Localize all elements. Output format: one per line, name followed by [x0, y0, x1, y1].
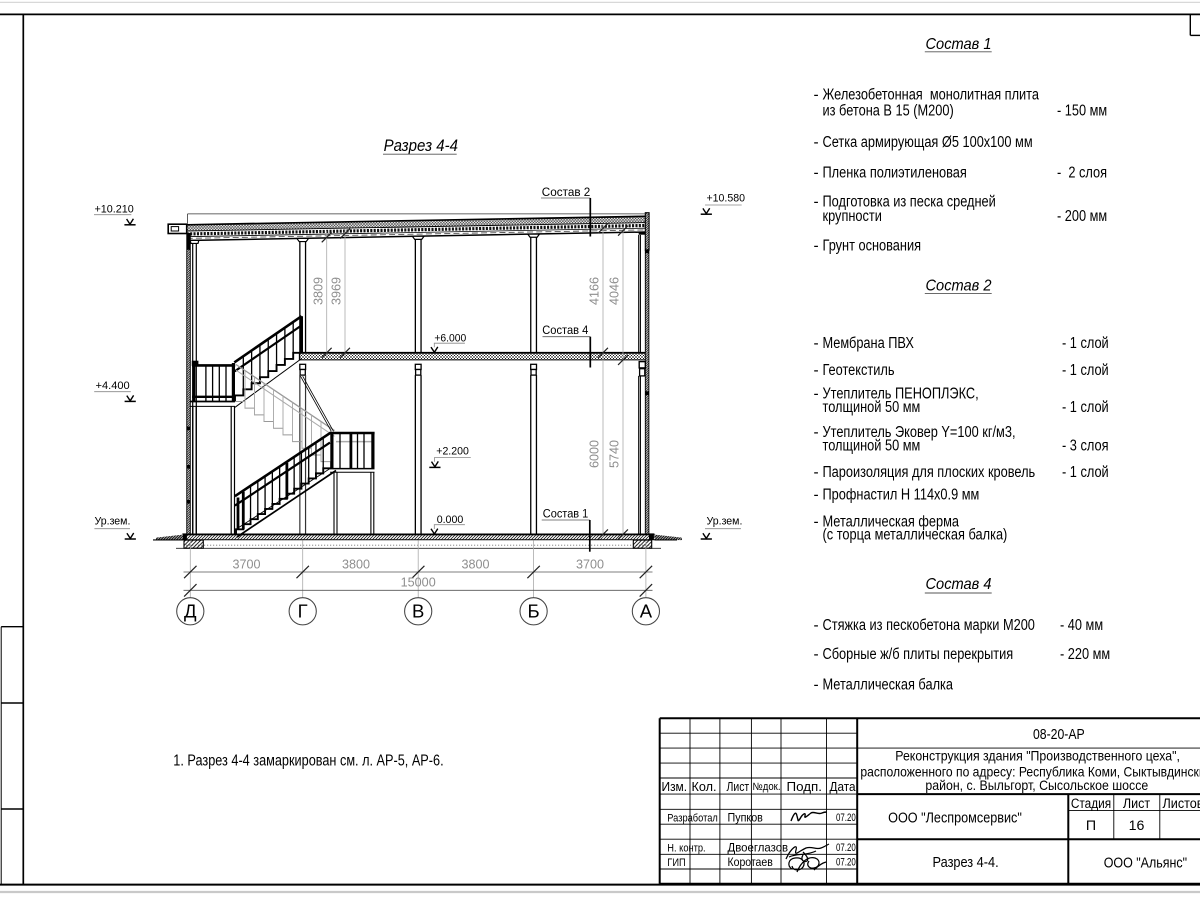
svg-text:-: -: [814, 238, 819, 255]
svg-text:-: -: [814, 514, 819, 531]
svg-text:Состав 1: Состав 1: [543, 507, 589, 521]
svg-text:-: -: [814, 194, 819, 211]
svg-text:Грунт основания: Грунт основания: [823, 238, 922, 255]
svg-text:- 150 мм: - 150 мм: [1057, 103, 1107, 120]
svg-text:+6.000: +6.000: [434, 332, 466, 344]
svg-text:Разрез 4-4.: Разрез 4-4.: [933, 855, 999, 871]
svg-text:Состав 4: Состав 4: [542, 323, 588, 337]
svg-text:Профнастил Н 114х0.9 мм: Профнастил Н 114х0.9 мм: [823, 487, 980, 504]
svg-text:ООО "Леспромсервис": ООО "Леспромсервис": [888, 811, 1022, 827]
svg-text:Сборные ж/б плиты перекрытия: Сборные ж/б плиты перекрытия: [823, 646, 1014, 663]
svg-text:+4.400: +4.400: [96, 380, 130, 392]
svg-text:район, с. Выльгорт, Сысольское: район, с. Выльгорт, Сысольское шоссе: [925, 778, 1148, 793]
svg-text:Стадия: Стадия: [1071, 796, 1111, 811]
svg-text:-: -: [814, 676, 819, 693]
svg-text:Пароизоляция для плоских крове: Пароизоляция для плоских кровель: [823, 464, 1036, 481]
svg-text:№док.: №док.: [753, 781, 781, 793]
svg-text:Дата: Дата: [830, 779, 857, 794]
svg-text:В: В: [412, 601, 424, 622]
svg-text:6000: 6000: [588, 440, 602, 468]
svg-text:-: -: [814, 335, 819, 352]
svg-text:Кол.: Кол.: [692, 779, 717, 794]
svg-text:07.20: 07.20: [836, 812, 856, 824]
svg-text:08-20-АР: 08-20-АР: [1033, 726, 1085, 743]
svg-text:Состав 2: Состав 2: [926, 277, 992, 294]
svg-text:Коротаев: Коротаев: [728, 855, 773, 869]
svg-text:Разработал: Разработал: [667, 812, 718, 824]
svg-text:- 1 слой: - 1 слой: [1062, 335, 1109, 352]
svg-text:Геотекстиль: Геотекстиль: [823, 362, 895, 379]
svg-text:3969: 3969: [330, 277, 344, 305]
svg-text:-: -: [814, 464, 819, 481]
svg-text:П: П: [1086, 818, 1096, 834]
svg-text:Двоеглазов: Двоеглазов: [728, 840, 789, 854]
svg-text:Металлическая балка: Металлическая балка: [823, 676, 954, 693]
svg-text:-: -: [814, 134, 819, 151]
svg-text:Д: Д: [184, 601, 197, 622]
svg-text:ООО "Альянс": ООО "Альянс": [1104, 856, 1187, 872]
svg-text:-: -: [814, 87, 819, 104]
svg-text:0.000: 0.000: [437, 514, 464, 526]
svg-text:- 3 слоя: - 3 слоя: [1062, 437, 1109, 454]
svg-text:Стяжка из пескобетона марки М2: Стяжка из пескобетона марки М200: [823, 617, 1035, 634]
svg-text:толщиной 50 мм: толщиной 50 мм: [823, 399, 921, 416]
svg-text:07.20: 07.20: [836, 842, 856, 854]
svg-text:крупности: крупности: [823, 208, 882, 225]
svg-text:(с торца металлическая балка): (с торца металлическая балка): [823, 527, 1008, 544]
svg-text:Железобетонная монолитная пли: Железобетонная монолитная плита: [823, 87, 1040, 104]
svg-text:Лист: Лист: [727, 779, 750, 794]
svg-text:Пленка полиэтиленовая: Пленка полиэтиленовая: [823, 165, 967, 182]
svg-text:-: -: [814, 362, 819, 379]
svg-text:+10.210: +10.210: [95, 204, 134, 216]
svg-text:- 1 слой: - 1 слой: [1062, 399, 1109, 416]
svg-text:- 1 слой: - 1 слой: [1062, 362, 1109, 379]
svg-text:Состав 1: Состав 1: [926, 36, 992, 53]
svg-text:из бетона В 15 (М200): из бетона В 15 (М200): [823, 103, 954, 120]
svg-text:ГИП: ГИП: [667, 857, 685, 869]
svg-text:4046: 4046: [608, 277, 622, 305]
svg-text:Листов: Листов: [1163, 796, 1200, 811]
svg-text:Пупков: Пупков: [728, 810, 763, 824]
svg-text:- 220 мм: - 220 мм: [1060, 646, 1110, 663]
svg-text:толщиной 50 мм: толщиной 50 мм: [823, 437, 921, 454]
svg-text:5740: 5740: [608, 440, 622, 468]
svg-text:1. Разрез 4-4 замаркирован см.: 1. Разрез 4-4 замаркирован см. л. АР-5, …: [173, 752, 443, 769]
svg-text:Состав 2: Состав 2: [542, 185, 591, 199]
svg-text:Б: Б: [528, 601, 540, 622]
svg-text:3800: 3800: [342, 558, 370, 572]
svg-text:-: -: [814, 487, 819, 504]
svg-text:3800: 3800: [461, 558, 489, 572]
svg-text:+2.200: +2.200: [436, 446, 469, 458]
svg-text:3700: 3700: [232, 558, 260, 572]
svg-text:Изм.: Изм.: [662, 779, 688, 794]
svg-text:4166: 4166: [588, 277, 602, 305]
svg-text:Подп.: Подп.: [787, 779, 823, 794]
svg-text:15000: 15000: [401, 576, 436, 590]
svg-text:- 40 мм: - 40 мм: [1060, 617, 1103, 634]
svg-text:Ур.зем.: Ур.зем.: [95, 516, 131, 528]
svg-text:А: А: [640, 601, 653, 622]
svg-text:-: -: [814, 424, 819, 441]
svg-text:+10.580: +10.580: [707, 193, 746, 205]
svg-text:07.20: 07.20: [836, 857, 856, 869]
svg-text:-: -: [814, 617, 819, 634]
svg-text:-: -: [814, 386, 819, 403]
svg-text:- 1 слой: - 1 слой: [1062, 464, 1109, 481]
svg-text:Сетка армирующая Ø5 100х100 мм: Сетка армирующая Ø5 100х100 мм: [823, 134, 1033, 151]
svg-text:- 2 слоя: - 2 слоя: [1057, 165, 1107, 182]
svg-text:3700: 3700: [576, 558, 604, 572]
svg-text:16: 16: [1129, 818, 1145, 834]
svg-text:Реконструкция здания "Производ: Реконструкция здания "Производственного …: [895, 749, 1180, 764]
svg-text:-: -: [814, 165, 819, 182]
svg-text:3809: 3809: [311, 277, 325, 305]
svg-text:Разрез 4-4: Разрез 4-4: [384, 137, 458, 155]
svg-text:- 200 мм: - 200 мм: [1057, 208, 1107, 225]
svg-text:Состав 4: Состав 4: [926, 576, 992, 593]
svg-text:-: -: [814, 646, 819, 663]
svg-text:Лист: Лист: [1123, 796, 1150, 811]
svg-text:Мембрана ПВХ: Мембрана ПВХ: [823, 335, 914, 352]
svg-text:Ур.зем.: Ур.зем.: [707, 516, 743, 528]
svg-text:Г: Г: [298, 601, 308, 622]
svg-text:Н. контр.: Н. контр.: [667, 842, 705, 854]
